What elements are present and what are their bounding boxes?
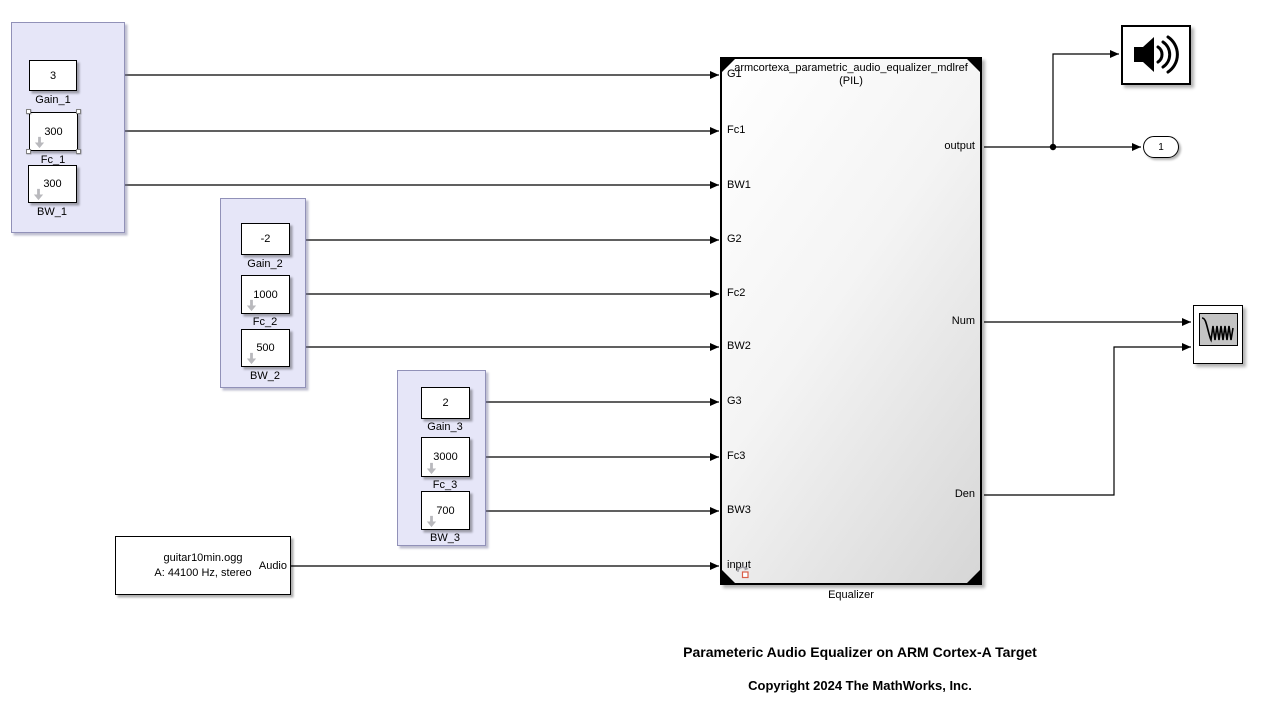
selection-handle[interactable] <box>76 109 81 114</box>
gain2-constant-block[interactable]: -2 <box>241 223 290 255</box>
down-arrow-icon <box>32 188 45 201</box>
wire-junction-dot <box>1050 144 1056 150</box>
bw1-constant-block[interactable]: 300 <box>28 165 77 203</box>
port-label-bw3: BW3 <box>727 504 751 517</box>
gain3-label: Gain_3 <box>427 421 462 433</box>
model-ref-badge-icon <box>736 566 750 579</box>
wire-output-speaker <box>1053 54 1119 147</box>
model-ref-corner-icon <box>967 570 980 583</box>
diagram-title: Parameteric Audio Equalizer on ARM Corte… <box>683 644 1037 660</box>
equalizer-model-name: armcortexa_parametric_audio_equalizer_md… <box>722 62 980 88</box>
bw3-value: 700 <box>436 505 454 517</box>
audio-file-source-block[interactable]: guitar10min.ogg A: 44100 Hz, stereo Audi… <box>115 536 291 595</box>
selection-handle[interactable] <box>26 109 31 114</box>
audio-format: A: 44100 Hz, stereo <box>154 566 251 581</box>
bw3-constant-block[interactable]: 700 <box>421 491 470 530</box>
gain1-constant-block[interactable]: 3 <box>29 60 77 91</box>
speaker-icon <box>1133 34 1179 76</box>
fc1-value: 300 <box>44 126 62 138</box>
fc3-label: Fc_3 <box>433 479 457 491</box>
signal-wire-layer[interactable] <box>0 0 1287 706</box>
filter-visualizer-block[interactable] <box>1193 305 1243 364</box>
gain3-constant-block[interactable]: 2 <box>421 387 470 419</box>
port-label-bw1: BW1 <box>727 179 751 192</box>
bw3-label: BW_3 <box>430 532 460 544</box>
filter-response-icon <box>1199 313 1238 346</box>
gain3-value: 2 <box>442 397 448 409</box>
port-label-output: output <box>944 140 975 153</box>
fc1-constant-block[interactable]: 300 <box>29 112 78 151</box>
gain2-label: Gain_2 <box>247 258 282 270</box>
port-label-g2: G2 <box>727 233 742 246</box>
port-label-g1: G1 <box>727 68 742 81</box>
down-arrow-icon <box>425 515 438 528</box>
outport-1[interactable]: 1 <box>1143 136 1179 158</box>
model-name-line2: (PIL) <box>722 75 980 88</box>
bw2-label: BW_2 <box>250 370 280 382</box>
bw2-value: 500 <box>256 342 274 354</box>
audio-device-writer-block[interactable] <box>1121 25 1191 85</box>
fc2-label: Fc_2 <box>253 316 277 328</box>
equalizer-model-block[interactable]: armcortexa_parametric_audio_equalizer_md… <box>720 57 982 585</box>
outport-1-label: 1 <box>1158 142 1164 153</box>
gain1-label: Gain_1 <box>35 94 70 106</box>
audio-file-name: guitar10min.ogg <box>164 551 243 566</box>
bw1-value: 300 <box>43 178 61 190</box>
simulink-canvas: 3 Gain_1 300 Fc_1 300 BW_1 -2 Gain_2 100… <box>0 0 1287 706</box>
model-name-line1: armcortexa_parametric_audio_equalizer_md… <box>722 62 980 75</box>
port-label-fc1: Fc1 <box>727 124 745 137</box>
down-arrow-icon <box>245 352 258 365</box>
down-arrow-icon <box>245 299 258 312</box>
bw2-constant-block[interactable]: 500 <box>241 329 290 367</box>
port-label-g3: G3 <box>727 395 742 408</box>
copyright-note: Copyright 2024 The MathWorks, Inc. <box>748 678 972 693</box>
port-label-num: Num <box>952 315 975 328</box>
down-arrow-icon <box>425 462 438 475</box>
gain1-value: 3 <box>50 70 56 82</box>
equalizer-caption: Equalizer <box>828 589 874 601</box>
wire-den-viz <box>984 347 1191 495</box>
port-label-bw2: BW2 <box>727 340 751 353</box>
fc2-constant-block[interactable]: 1000 <box>241 275 290 314</box>
selection-handle[interactable] <box>76 149 81 154</box>
audio-out-port-label: Audio <box>259 560 287 572</box>
port-label-den: Den <box>955 488 975 501</box>
port-label-fc3: Fc3 <box>727 450 745 463</box>
gain2-value: -2 <box>261 233 271 245</box>
selection-handle[interactable] <box>26 149 31 154</box>
port-label-fc2: Fc2 <box>727 287 745 300</box>
bw1-label: BW_1 <box>37 206 67 218</box>
down-arrow-icon <box>33 136 46 149</box>
fc3-constant-block[interactable]: 3000 <box>421 437 470 477</box>
